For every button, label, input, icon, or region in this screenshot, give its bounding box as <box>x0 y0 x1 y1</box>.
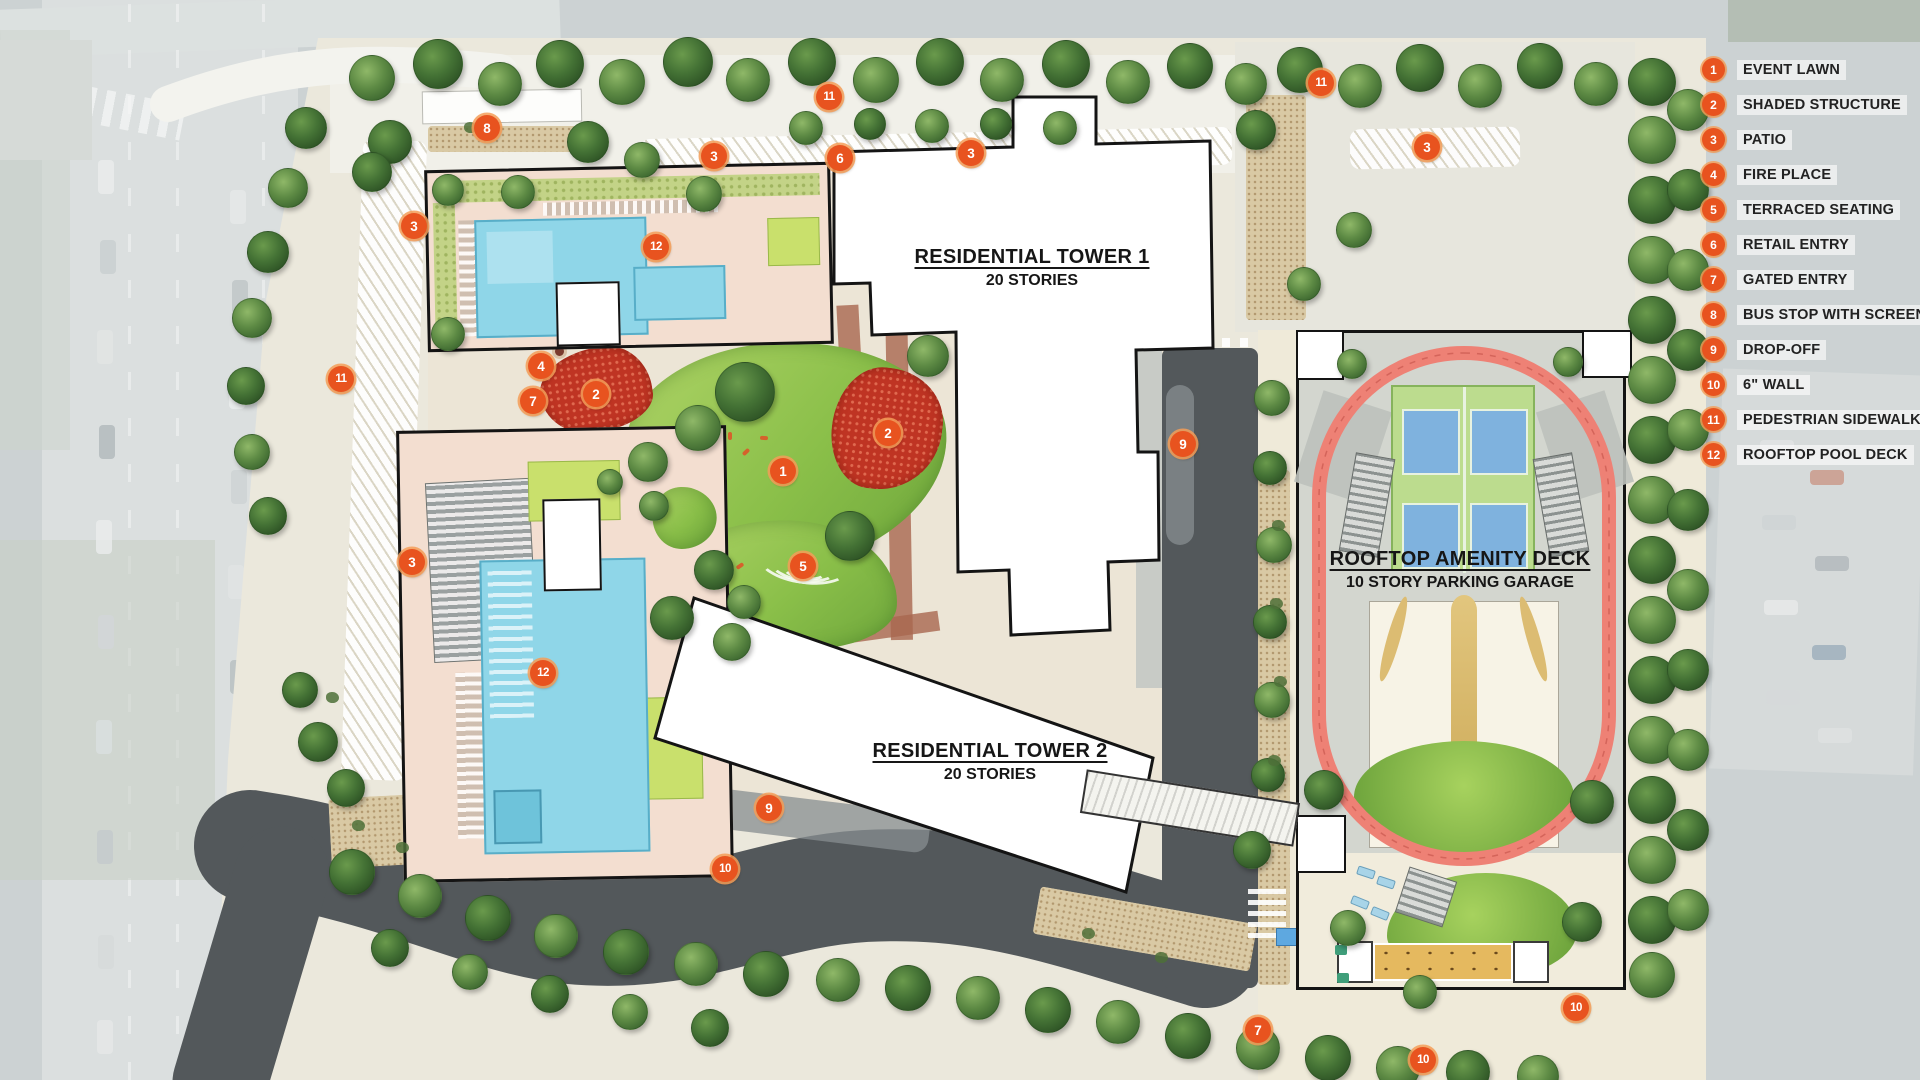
legend-marker-icon: 11 <box>1702 408 1725 431</box>
legend-label: PATIO <box>1737 130 1792 150</box>
plan-marker-3: 3 <box>958 140 984 166</box>
plan-marker-3: 3 <box>1414 134 1440 160</box>
legend-marker-icon: 1 <box>1702 58 1725 81</box>
site-plan-canvas: 12383116311311472215931291071010 RESIDEN… <box>0 0 1920 1080</box>
plan-marker-8: 8 <box>474 115 500 141</box>
legend-label: RETAIL ENTRY <box>1737 235 1855 255</box>
legend-marker-icon: 4 <box>1702 163 1725 186</box>
plan-marker-9: 9 <box>756 795 782 821</box>
plan-marker-1: 1 <box>770 458 796 484</box>
legend-item: 5TERRACED SEATING <box>1702 198 1920 221</box>
plan-marker-7: 7 <box>1245 1017 1271 1043</box>
plan-marker-10: 10 <box>1410 1047 1436 1073</box>
legend-item: 106" WALL <box>1702 373 1920 396</box>
amenity-label: ROOFTOP AMENITY DECK 10 STORY PARKING GA… <box>1310 548 1610 592</box>
plan-marker-10: 10 <box>712 856 738 882</box>
legend-marker-icon: 2 <box>1702 93 1725 116</box>
plan-marker-4: 4 <box>528 353 554 379</box>
plan-marker-7: 7 <box>520 388 546 414</box>
amenity-subtitle: 10 STORY PARKING GARAGE <box>1310 574 1610 592</box>
legend-item: 9DROP-OFF <box>1702 338 1920 361</box>
tower2-title: RESIDENTIAL TOWER 2 <box>858 740 1122 763</box>
tower2-subtitle: 20 STORIES <box>858 766 1122 784</box>
legend-item: 6RETAIL ENTRY <box>1702 233 1920 256</box>
legend-label: DROP-OFF <box>1737 340 1826 360</box>
legend-marker-icon: 6 <box>1702 233 1725 256</box>
legend-item: 1EVENT LAWN <box>1702 58 1920 81</box>
plan-marker-3: 3 <box>399 549 425 575</box>
legend-marker-icon: 7 <box>1702 268 1725 291</box>
legend-item: 8BUS STOP WITH SCREEN <box>1702 303 1920 326</box>
legend-item: 12ROOFTOP POOL DECK <box>1702 443 1920 466</box>
plan-marker-11: 11 <box>816 84 842 110</box>
legend-marker-icon: 5 <box>1702 198 1725 221</box>
plan-markers: 12383116311311472215931291071010 <box>0 0 1920 1080</box>
legend: 1EVENT LAWN2SHADED STRUCTURE3PATIO4FIRE … <box>1702 58 1920 478</box>
plan-marker-9: 9 <box>1170 431 1196 457</box>
tower2-label: RESIDENTIAL TOWER 2 20 STORIES <box>858 740 1122 784</box>
plan-marker-5: 5 <box>790 553 816 579</box>
legend-label: PEDESTRIAN SIDEWALK <box>1737 410 1920 430</box>
legend-item: 2SHADED STRUCTURE <box>1702 93 1920 116</box>
plan-marker-12: 12 <box>643 234 669 260</box>
legend-item: 3PATIO <box>1702 128 1920 151</box>
plan-marker-11: 11 <box>328 366 354 392</box>
plan-marker-2: 2 <box>875 420 901 446</box>
legend-label: GATED ENTRY <box>1737 270 1854 290</box>
plan-marker-12: 12 <box>530 660 556 686</box>
amenity-title: ROOFTOP AMENITY DECK <box>1310 548 1610 571</box>
tower1-subtitle: 20 STORIES <box>900 272 1164 290</box>
legend-marker-icon: 9 <box>1702 338 1725 361</box>
legend-item: 11PEDESTRIAN SIDEWALK <box>1702 408 1920 431</box>
tower1-title: RESIDENTIAL TOWER 1 <box>900 246 1164 269</box>
legend-marker-icon: 3 <box>1702 128 1725 151</box>
plan-marker-11: 11 <box>1308 70 1334 96</box>
plan-marker-10: 10 <box>1563 995 1589 1021</box>
plan-marker-3: 3 <box>701 143 727 169</box>
legend-label: BUS STOP WITH SCREEN <box>1737 305 1920 325</box>
legend-label: TERRACED SEATING <box>1737 200 1900 220</box>
legend-marker-icon: 8 <box>1702 303 1725 326</box>
legend-label: EVENT LAWN <box>1737 60 1846 80</box>
legend-marker-icon: 12 <box>1702 443 1725 466</box>
legend-label: 6" WALL <box>1737 375 1810 395</box>
plan-marker-6: 6 <box>827 145 853 171</box>
legend-label: SHADED STRUCTURE <box>1737 95 1907 115</box>
legend-label: FIRE PLACE <box>1737 165 1837 185</box>
legend-marker-icon: 10 <box>1702 373 1725 396</box>
tower1-label: RESIDENTIAL TOWER 1 20 STORIES <box>900 246 1164 290</box>
plan-marker-3: 3 <box>401 213 427 239</box>
legend-item: 4FIRE PLACE <box>1702 163 1920 186</box>
legend-label: ROOFTOP POOL DECK <box>1737 445 1914 465</box>
plan-marker-2: 2 <box>583 381 609 407</box>
legend-item: 7GATED ENTRY <box>1702 268 1920 291</box>
